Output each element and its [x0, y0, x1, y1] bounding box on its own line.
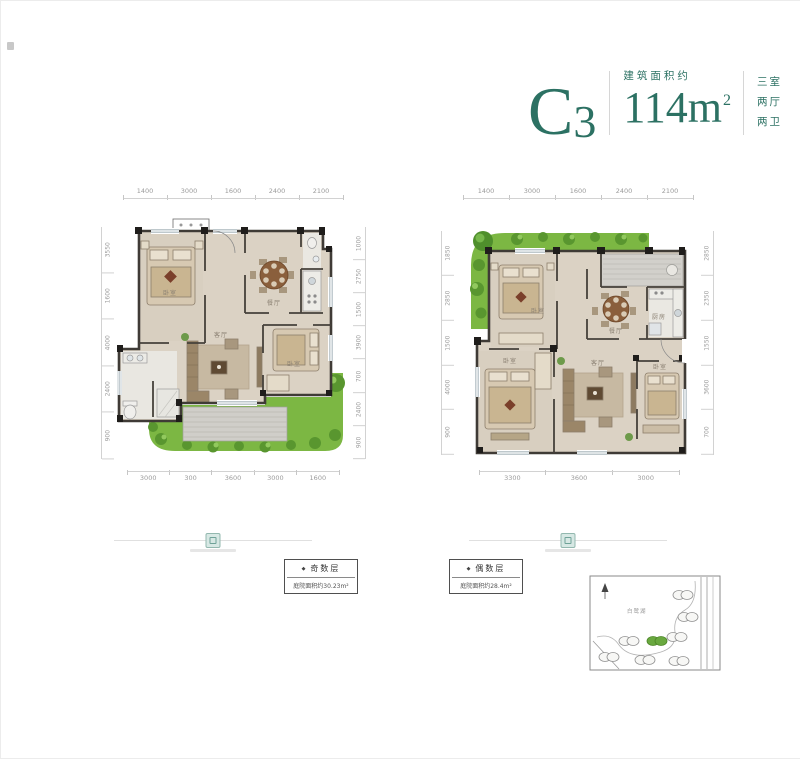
dim-label: 900 [353, 426, 365, 459]
dim-label: 2100 [299, 187, 343, 199]
layout-line-3: 两卫 [757, 113, 782, 133]
room-label-living: 客厅 [591, 359, 605, 367]
page-mark [7, 42, 14, 50]
dim-label: 1400 [463, 187, 509, 199]
dim-label: 3550 [102, 227, 114, 273]
room-label-living: 客厅 [214, 331, 228, 339]
building [678, 613, 698, 622]
dim-label: 3600 [212, 471, 254, 483]
area-value: 114m2 [623, 83, 730, 134]
dim-label: 900 [102, 413, 114, 459]
odd-floor-note: ◆ 奇数层 庭院面积约30.23m² [284, 559, 358, 594]
site-map-label: 白鹭湖 [627, 607, 647, 615]
area-block: 建筑面积约 114m2 [623, 65, 730, 141]
dims-top: 14003000160024002100 [123, 187, 343, 199]
building [673, 591, 693, 600]
entry-opening [682, 339, 688, 363]
dim-label: 1500 [442, 321, 454, 366]
dim-label: 1600 [102, 273, 114, 319]
dim-label: 2400 [102, 366, 114, 412]
dim-label: 4000 [102, 320, 114, 366]
building-highlighted [647, 637, 667, 646]
layout-line-1: 三室 [757, 73, 782, 93]
terrace [183, 407, 287, 441]
floorplan-page: C 3 建筑面积约 114m2 三室 两厅 两卫 140030001600240… [0, 0, 800, 759]
dim-label: 1400 [123, 187, 167, 199]
dim-label: 1550 [701, 321, 713, 366]
brand-tagline [545, 549, 591, 552]
building [619, 637, 639, 646]
area-label: 建筑面积约 [623, 68, 730, 83]
dim-label: 3000 [127, 471, 169, 483]
dims-left: 1850285015004000900 [441, 231, 454, 455]
header-divider-1 [609, 71, 610, 135]
room-label-dining: 餐厅 [609, 327, 623, 335]
dim-label: 2400 [601, 187, 647, 199]
unit-code: C 3 [528, 65, 596, 141]
dim-label: 700 [701, 410, 713, 455]
dim-label: 3000 [509, 187, 555, 199]
brand-logo-icon [561, 533, 576, 548]
dim-label: 1600 [297, 471, 339, 483]
room-label-dining: 餐厅 [267, 299, 281, 307]
layout-summary: 三室 两厅 两卫 [757, 65, 782, 141]
floor-plan-even-drawing: 卧室 餐厅 厨房 客厅 卧室 卧室 [459, 221, 697, 461]
dim-label: 1600 [211, 187, 255, 199]
diamond-bullet-icon: ◆ [302, 566, 308, 572]
dim-label: 300 [169, 471, 211, 483]
even-floor-title: ◆ 偶数层 [452, 563, 520, 578]
dim-label: 2400 [255, 187, 299, 199]
brand-logo-icon [206, 533, 221, 548]
room-label-bedroom1: 卧室 [163, 289, 177, 297]
dim-label: 1000 [353, 227, 365, 260]
dim-label: 3900 [353, 326, 365, 359]
plan-odd-floors: 14003000160024002100 3550160040002400900… [97, 187, 369, 489]
dim-label: 2750 [353, 260, 365, 293]
building [599, 653, 619, 662]
room-label-bedroom2: 卧室 [503, 357, 517, 365]
building [667, 633, 687, 642]
odd-floor-title-text: 奇数层 [310, 563, 340, 574]
site-map: 白鹭湖 [589, 575, 721, 671]
dim-label: 3300 [479, 471, 546, 483]
dim-label: 3000 [167, 187, 211, 199]
building [635, 656, 655, 665]
deck [601, 254, 683, 286]
dim-label: 2100 [647, 187, 693, 199]
dim-label: 4000 [442, 365, 454, 410]
layout-line-2: 两厅 [757, 93, 782, 113]
plan-even-floors: 14003000160024002100 1850285015004000900… [439, 187, 721, 489]
dim-label: 3000 [254, 471, 296, 483]
unit-header: C 3 建筑面积约 114m2 三室 两厅 两卫 [528, 65, 782, 141]
room-label-bedroom2: 卧室 [287, 360, 301, 368]
dims-left: 3550160040002400900 [101, 227, 114, 459]
odd-floor-title: ◆ 奇数层 [287, 563, 355, 578]
dim-label: 3000 [612, 471, 679, 483]
room-label-bedroom3: 卧室 [653, 363, 667, 371]
dim-label: 2850 [442, 276, 454, 321]
even-floor-note: ◆ 偶数层 庭院面积约28.4m² [449, 559, 523, 594]
dims-bottom: 330036003000 [479, 471, 679, 483]
dim-label: 2400 [353, 393, 365, 426]
brand-divider-left [114, 531, 312, 553]
dim-label: 1600 [555, 187, 601, 199]
dims-top: 14003000160024002100 [463, 187, 693, 199]
header-divider-2 [743, 71, 744, 135]
odd-floor-area: 庭院面积约30.23m² [287, 578, 355, 590]
even-floor-title-text: 偶数层 [475, 563, 505, 574]
dim-label: 2350 [701, 276, 713, 321]
brand-tagline [190, 549, 236, 552]
kitchen-fixtures [303, 271, 321, 311]
floor-plan-odd-drawing: 卧室 餐厅 客厅 卧室 [117, 213, 349, 465]
unit-code-letter: C [528, 83, 573, 141]
dim-label: 3600 [701, 365, 713, 410]
dims-right: 10002750150039007002400900 [353, 227, 366, 459]
dim-label: 1500 [353, 293, 365, 326]
dim-label: 1850 [442, 231, 454, 276]
unit-code-number: 3 [573, 102, 596, 141]
room-label-kitchen: 厨房 [652, 313, 666, 321]
brand-divider-right [469, 531, 667, 553]
dims-bottom: 3000300360030001600 [127, 471, 339, 483]
dim-label: 700 [353, 360, 365, 393]
room-label-bedroom1: 卧室 [531, 307, 545, 315]
building [669, 657, 689, 666]
dim-label: 2850 [701, 231, 713, 276]
dims-right: 2850235015503600700 [701, 231, 714, 455]
dim-label: 3600 [546, 471, 613, 483]
diamond-bullet-icon: ◆ [467, 566, 473, 572]
even-floor-area: 庭院面积约28.4m² [452, 578, 520, 590]
dim-label: 900 [442, 410, 454, 455]
